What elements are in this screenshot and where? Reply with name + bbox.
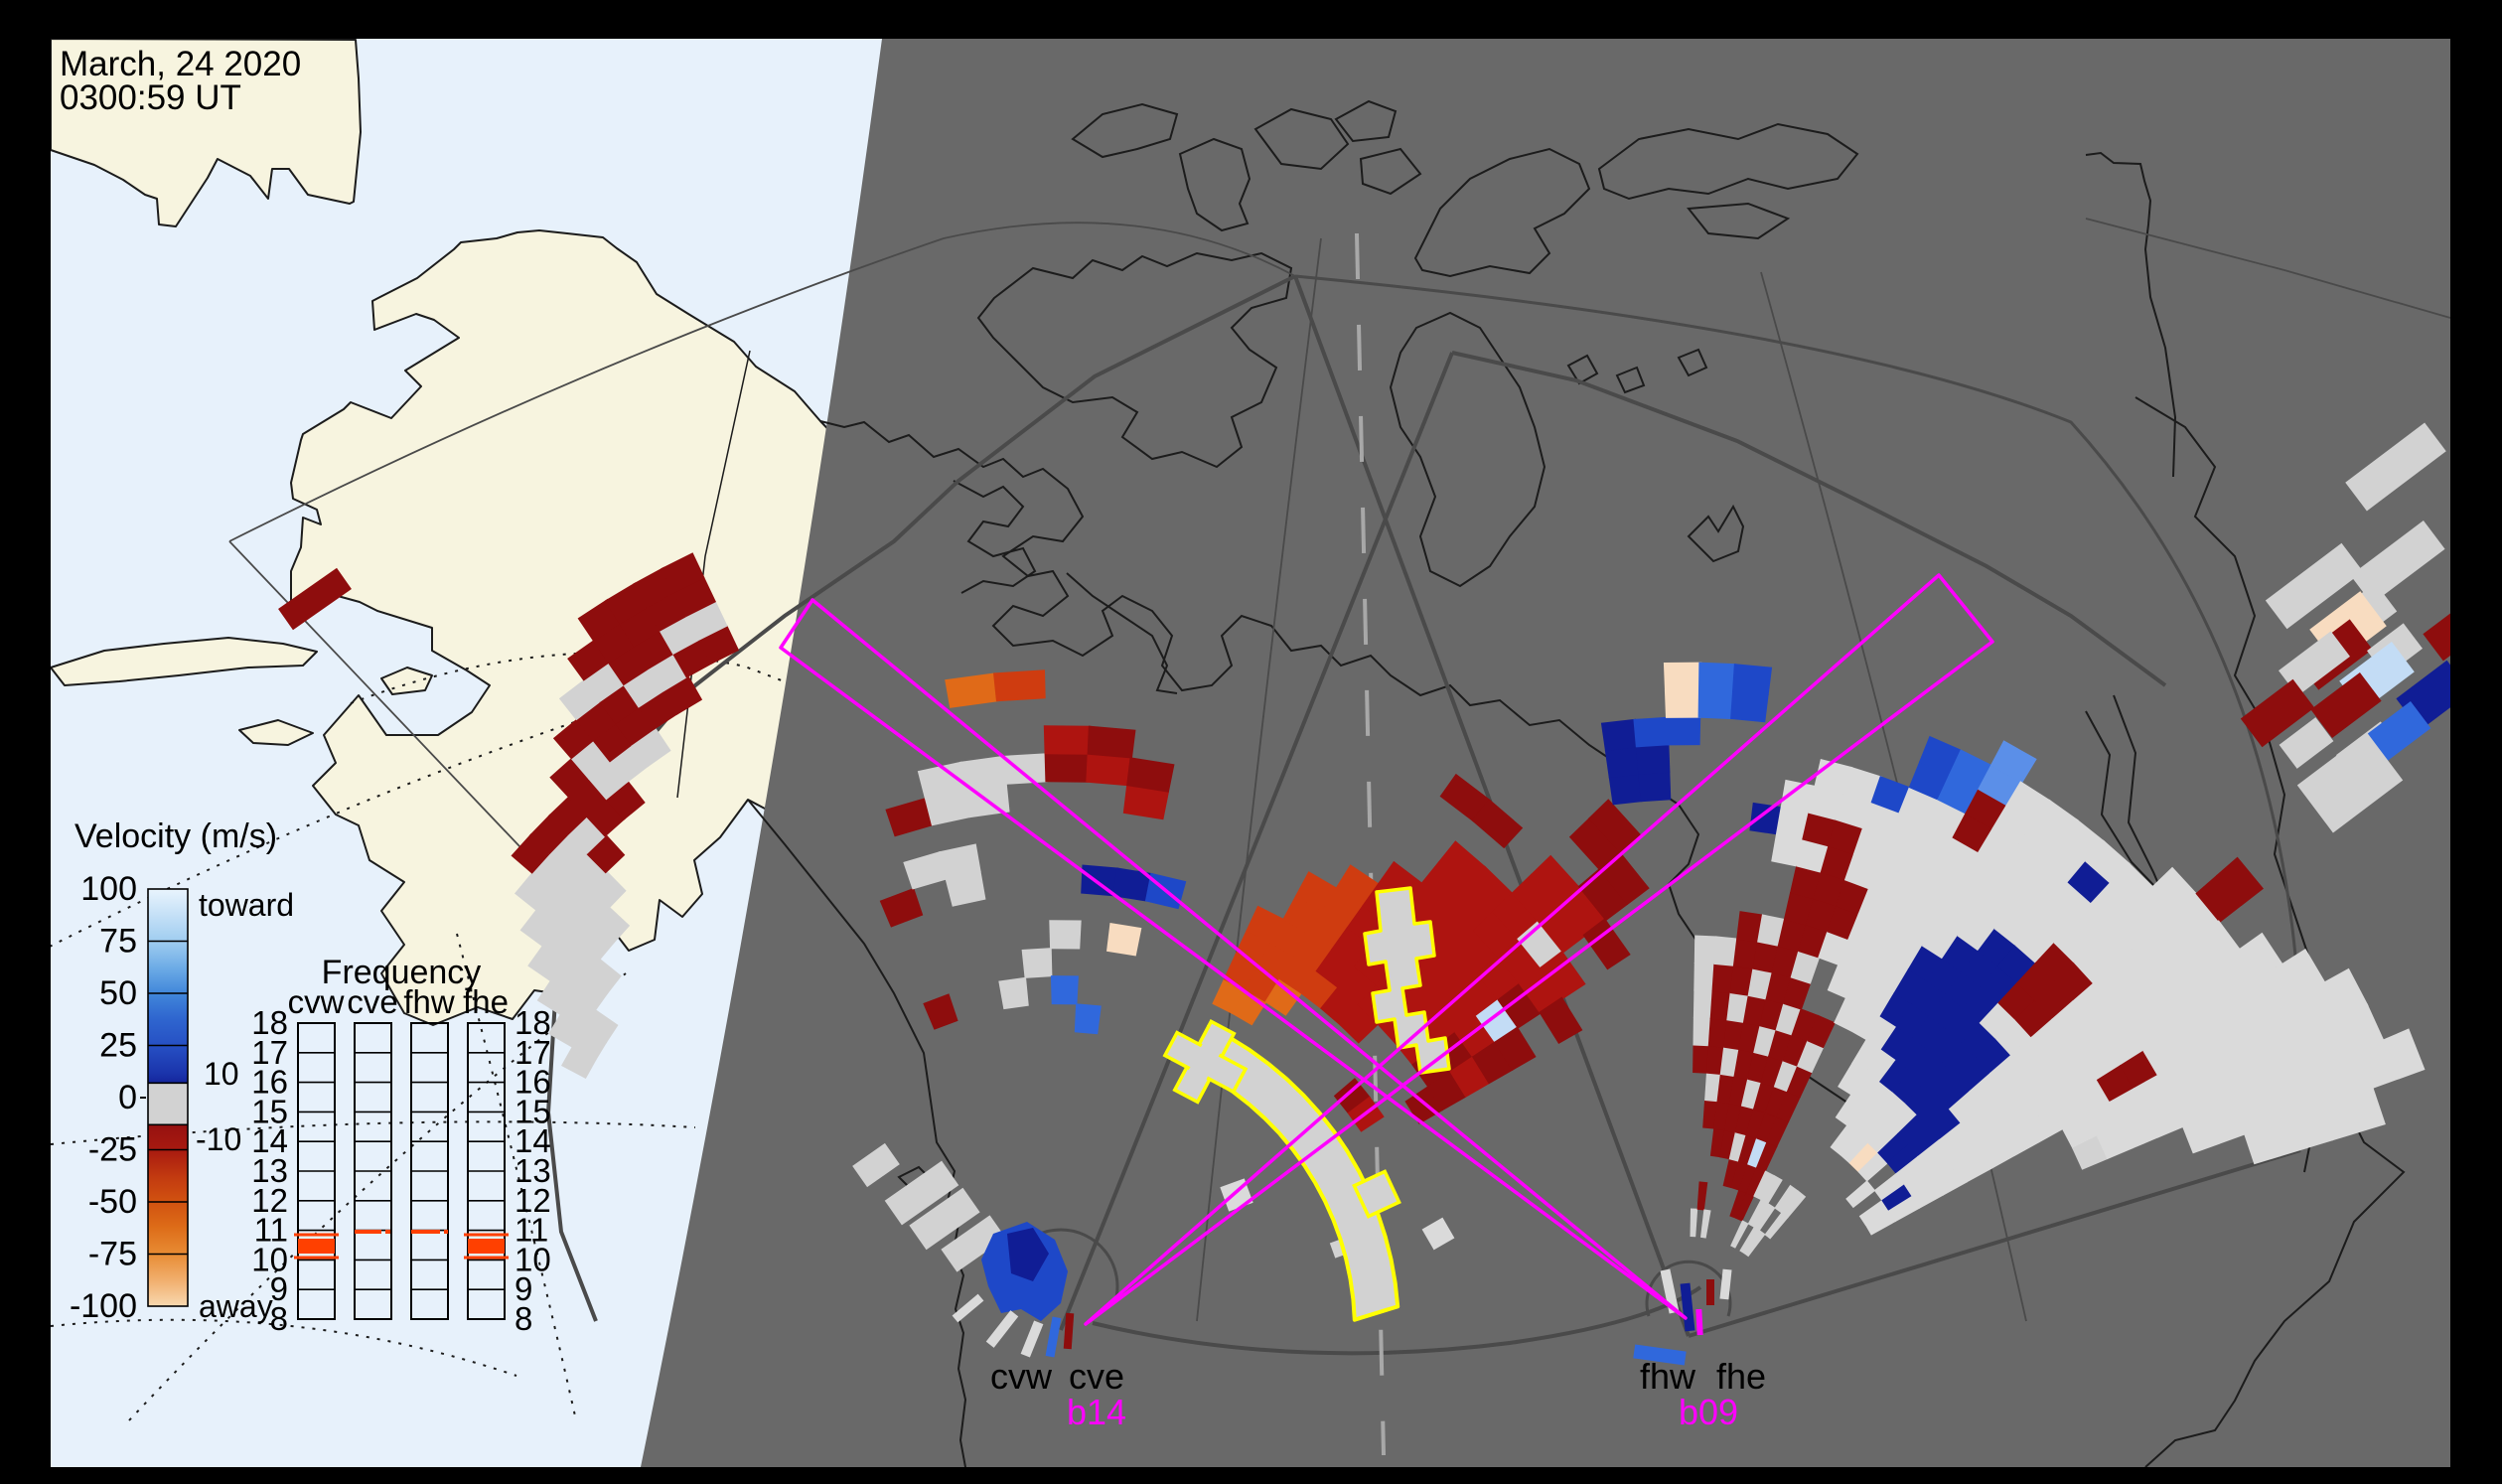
svg-text:75: 75 <box>99 923 137 961</box>
svg-text:cve: cve <box>347 983 397 1020</box>
svg-text:0: 0 <box>118 1079 137 1116</box>
svg-text:fhe: fhe <box>463 983 509 1020</box>
svg-text:b09: b09 <box>1679 1392 1738 1432</box>
svg-text:8: 8 <box>515 1300 532 1337</box>
svg-text:fhw: fhw <box>403 983 455 1020</box>
svg-text:cve: cve <box>1069 1356 1124 1397</box>
svg-text:-100: -100 <box>70 1287 137 1325</box>
svg-text:-10: -10 <box>196 1121 241 1157</box>
svg-text:fhw: fhw <box>1640 1356 1696 1397</box>
svg-text:8: 8 <box>270 1300 288 1337</box>
svg-text:b14: b14 <box>1067 1392 1126 1432</box>
svg-text:-25: -25 <box>88 1131 137 1169</box>
svg-text:-75: -75 <box>88 1236 137 1273</box>
svg-text:25: 25 <box>99 1027 137 1065</box>
svg-text:-50: -50 <box>88 1183 137 1221</box>
svg-text:10: 10 <box>204 1056 239 1092</box>
svg-text:Frequency: Frequency <box>322 954 482 991</box>
svg-text:cvw: cvw <box>288 983 345 1020</box>
svg-text:away: away <box>199 1288 273 1324</box>
svg-text:0300:59 UT: 0300:59 UT <box>60 78 241 117</box>
svg-text:cvw: cvw <box>990 1356 1053 1397</box>
svg-text:50: 50 <box>99 974 137 1012</box>
svg-text:toward: toward <box>199 887 294 923</box>
svg-text:100: 100 <box>80 870 137 908</box>
svg-text:Velocity (m/s): Velocity (m/s) <box>74 817 277 855</box>
svg-text:fhe: fhe <box>1716 1356 1766 1397</box>
